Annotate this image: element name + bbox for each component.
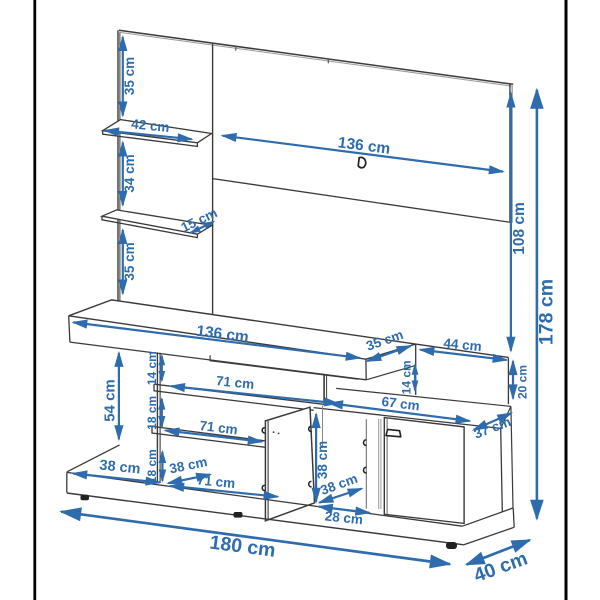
svg-text:20 cm: 20 cm bbox=[516, 365, 530, 399]
svg-text:14 cm: 14 cm bbox=[400, 360, 414, 394]
svg-text:108 cm: 108 cm bbox=[511, 202, 528, 255]
svg-text:54 cm: 54 cm bbox=[102, 379, 119, 422]
svg-text:178 cm: 178 cm bbox=[536, 279, 558, 345]
svg-text:35 cm: 35 cm bbox=[122, 242, 137, 280]
svg-text:38 cm: 38 cm bbox=[315, 441, 330, 479]
svg-text:18 cm: 18 cm bbox=[145, 396, 159, 430]
svg-text:34 cm: 34 cm bbox=[122, 154, 137, 192]
svg-text:35 cm: 35 cm bbox=[122, 57, 137, 95]
svg-text:14 cm: 14 cm bbox=[145, 351, 159, 385]
